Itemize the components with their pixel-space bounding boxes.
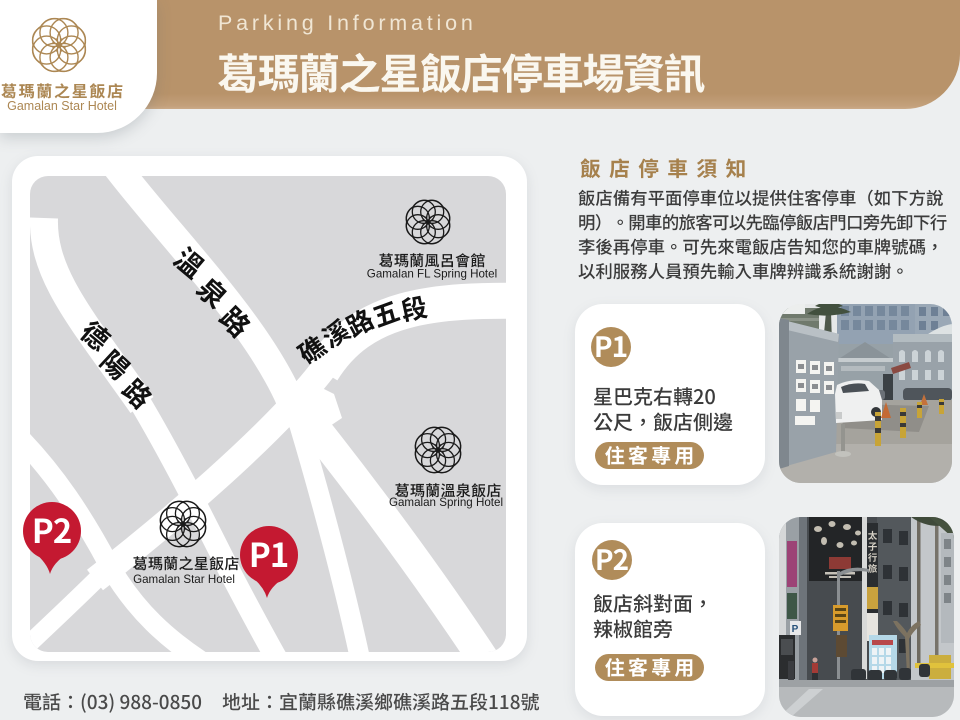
svg-text:Gamalan Spring Hotel: Gamalan Spring Hotel [389,496,503,509]
svg-text:Gamalan Star Hotel: Gamalan Star Hotel [7,99,117,113]
svg-text:P: P [792,624,799,635]
svg-text:Gamalan Star Hotel: Gamalan Star Hotel [133,573,235,586]
svg-text:Gamalan FL Spring Hotel: Gamalan FL Spring Hotel [367,268,497,281]
